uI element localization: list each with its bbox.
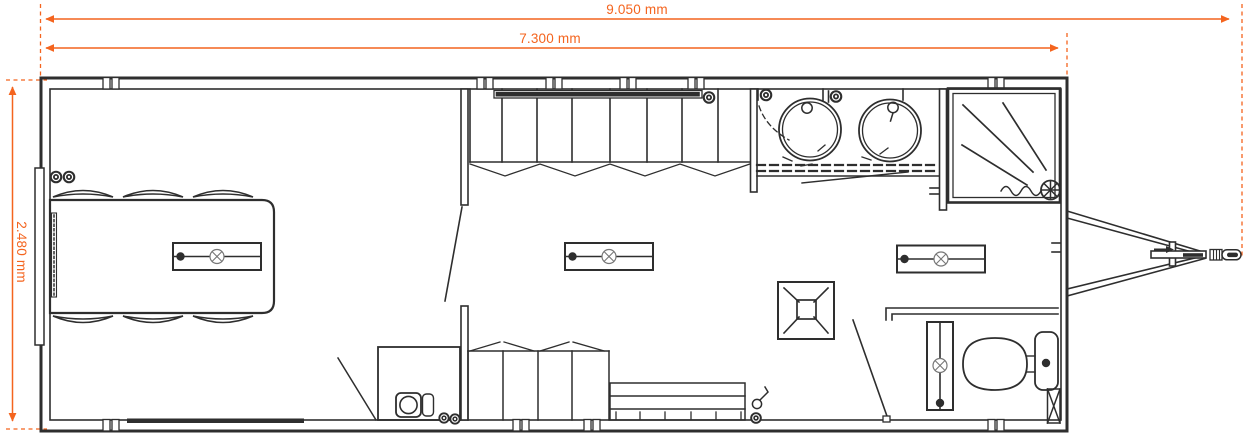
hanging-rail <box>494 91 702 99</box>
rail-end-knob <box>703 91 716 104</box>
door-leaf <box>338 358 376 420</box>
wall-post <box>461 306 468 420</box>
washing-machine-door <box>400 396 417 413</box>
lower-wardrobe <box>468 342 609 420</box>
vertical-light-bar <box>927 322 953 410</box>
chair <box>53 316 113 323</box>
plan-linework <box>35 78 1241 432</box>
chair <box>193 316 253 323</box>
door-leaf <box>445 207 462 301</box>
dim-label-total-length: 9.050 mm <box>606 3 668 17</box>
door-leaf <box>853 320 888 419</box>
faucet <box>802 103 812 113</box>
utility-cabinet <box>378 347 461 425</box>
dimension-lines <box>6 4 1242 429</box>
tow-coupling <box>1210 250 1241 261</box>
wall-light-pair <box>50 171 76 184</box>
spotlight <box>830 90 843 103</box>
door-leaf <box>802 172 908 183</box>
interior-walls <box>461 89 1060 420</box>
chair <box>123 316 183 323</box>
washbasin-counter <box>757 89 939 176</box>
entrance-mat <box>127 419 304 424</box>
exterior-walls <box>41 78 1067 431</box>
faucet <box>888 102 898 112</box>
spotlight <box>760 89 773 102</box>
toilet-room <box>927 322 1060 423</box>
water-wave <box>1001 187 1041 196</box>
bench-seat <box>610 383 745 420</box>
dim-label-width: 2.480 mm <box>14 221 28 283</box>
chair <box>123 191 183 198</box>
trailer-drawbar <box>1067 211 1241 296</box>
wall-toilet-room <box>886 308 1058 320</box>
chair <box>193 191 253 198</box>
toilet-bowl <box>963 338 1027 390</box>
floor-plan-drawing <box>0 0 1250 436</box>
door-stop <box>883 416 890 422</box>
toilet <box>963 332 1058 390</box>
spotlight-pair <box>438 412 460 424</box>
ceiling-light-bar <box>173 243 261 270</box>
folding-front <box>470 164 750 176</box>
ceiling-light-bar <box>897 246 985 273</box>
wall-living-divider <box>461 89 468 205</box>
small-door <box>423 394 434 416</box>
floor-plan-canvas: 9.050 mm 7.300 mm 2.480 mm <box>0 0 1250 436</box>
vent-duct <box>1048 389 1061 423</box>
coat-hook <box>750 387 768 424</box>
chair <box>53 191 113 198</box>
shower-cabin <box>948 89 1060 203</box>
living-area <box>50 171 304 423</box>
extractor-fan <box>1041 181 1060 200</box>
sliding-door-panel <box>35 168 57 345</box>
washbasin-right <box>859 89 921 162</box>
wall-joints <box>103 78 1004 432</box>
wall-washroom-shower <box>940 89 947 210</box>
dim-label-body-length: 7.300 mm <box>519 32 581 46</box>
wardrobe <box>470 89 750 176</box>
extension-lines <box>6 4 1242 429</box>
ceiling-light-bar <box>565 243 653 270</box>
roof-vent <box>778 282 834 339</box>
wall-wardrobe-washroom <box>751 89 758 192</box>
ceiling-light-bars <box>173 243 985 273</box>
